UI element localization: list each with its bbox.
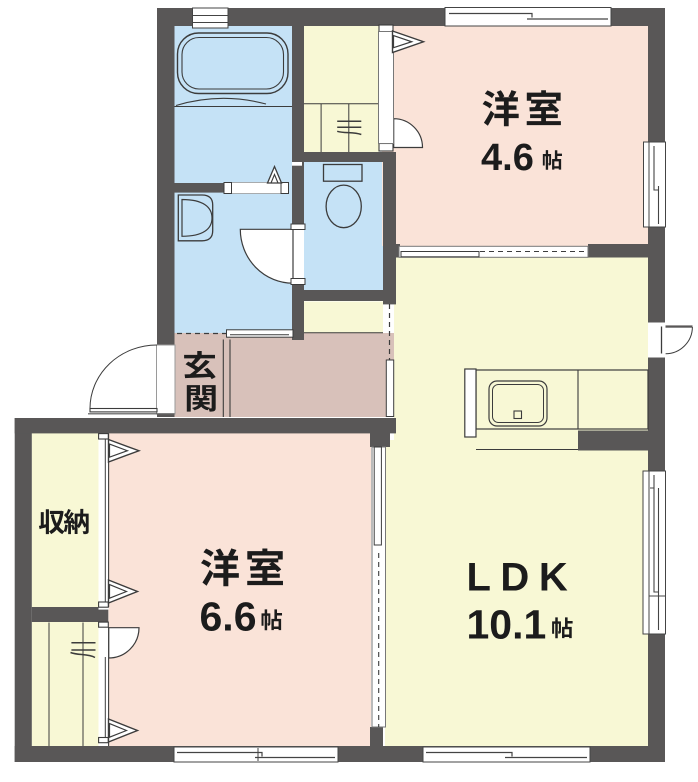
svg-text:6.6: 6.6 bbox=[200, 593, 257, 639]
svg-text:LDK: LDK bbox=[467, 556, 578, 600]
svg-text:4.6: 4.6 bbox=[481, 137, 534, 179]
svg-text:10.1: 10.1 bbox=[467, 601, 547, 647]
